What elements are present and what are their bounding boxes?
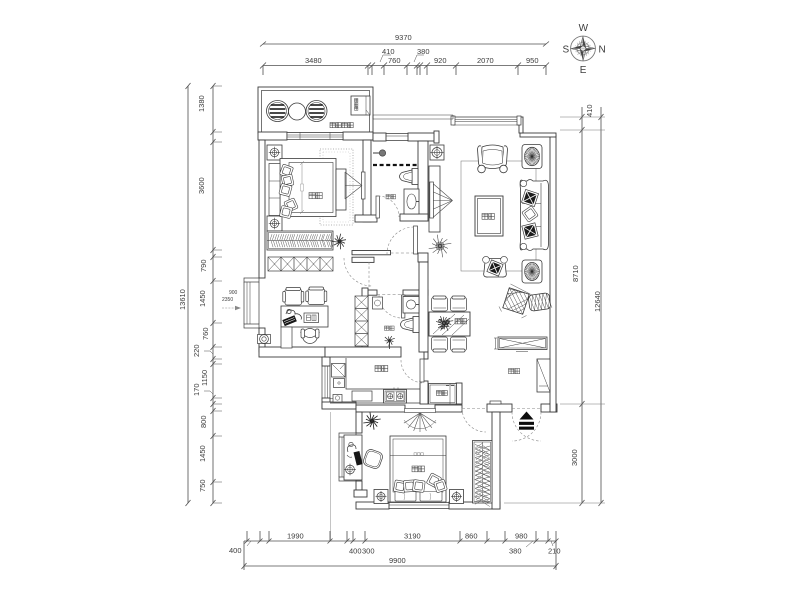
svg-text:9900: 9900 xyxy=(389,556,406,565)
svg-text:920: 920 xyxy=(434,56,447,65)
svg-text:750: 750 xyxy=(198,479,207,492)
svg-text:E: E xyxy=(580,65,587,76)
svg-text:1990: 1990 xyxy=(287,532,304,541)
svg-text:760: 760 xyxy=(388,56,401,65)
svg-text:1380: 1380 xyxy=(197,95,206,112)
svg-text:8710: 8710 xyxy=(571,265,580,282)
svg-text:12640: 12640 xyxy=(593,291,602,312)
svg-text:1450: 1450 xyxy=(198,290,207,307)
svg-text:1450: 1450 xyxy=(198,445,207,462)
svg-text:410: 410 xyxy=(382,47,395,56)
svg-text:800: 800 xyxy=(199,415,208,428)
svg-text:950: 950 xyxy=(526,56,539,65)
svg-text:400: 400 xyxy=(349,547,362,556)
svg-text:760: 760 xyxy=(201,327,210,340)
svg-text:300: 300 xyxy=(362,547,375,556)
svg-text:3600: 3600 xyxy=(197,177,206,194)
svg-text:N: N xyxy=(599,45,606,56)
svg-text:13610: 13610 xyxy=(178,289,187,310)
svg-text:2350: 2350 xyxy=(222,297,233,303)
svg-text:980: 980 xyxy=(515,532,528,541)
svg-text:400: 400 xyxy=(229,546,242,555)
svg-text:790: 790 xyxy=(199,259,208,272)
svg-text:900: 900 xyxy=(229,290,238,296)
svg-text:3000: 3000 xyxy=(570,449,579,466)
svg-text:220: 220 xyxy=(192,344,201,357)
svg-text:S: S xyxy=(563,45,570,56)
svg-text:9370: 9370 xyxy=(395,33,412,42)
svg-text:170: 170 xyxy=(192,383,201,396)
svg-text:3190: 3190 xyxy=(404,532,421,541)
svg-text:410: 410 xyxy=(585,104,594,117)
svg-text:2070: 2070 xyxy=(477,56,494,65)
svg-text:860: 860 xyxy=(465,532,478,541)
svg-text:380: 380 xyxy=(509,547,522,556)
svg-text:1150: 1150 xyxy=(200,370,209,386)
svg-text:3480: 3480 xyxy=(305,56,322,65)
svg-text:W: W xyxy=(579,23,589,34)
svg-text:380: 380 xyxy=(417,47,430,56)
svg-text:210: 210 xyxy=(548,547,561,556)
